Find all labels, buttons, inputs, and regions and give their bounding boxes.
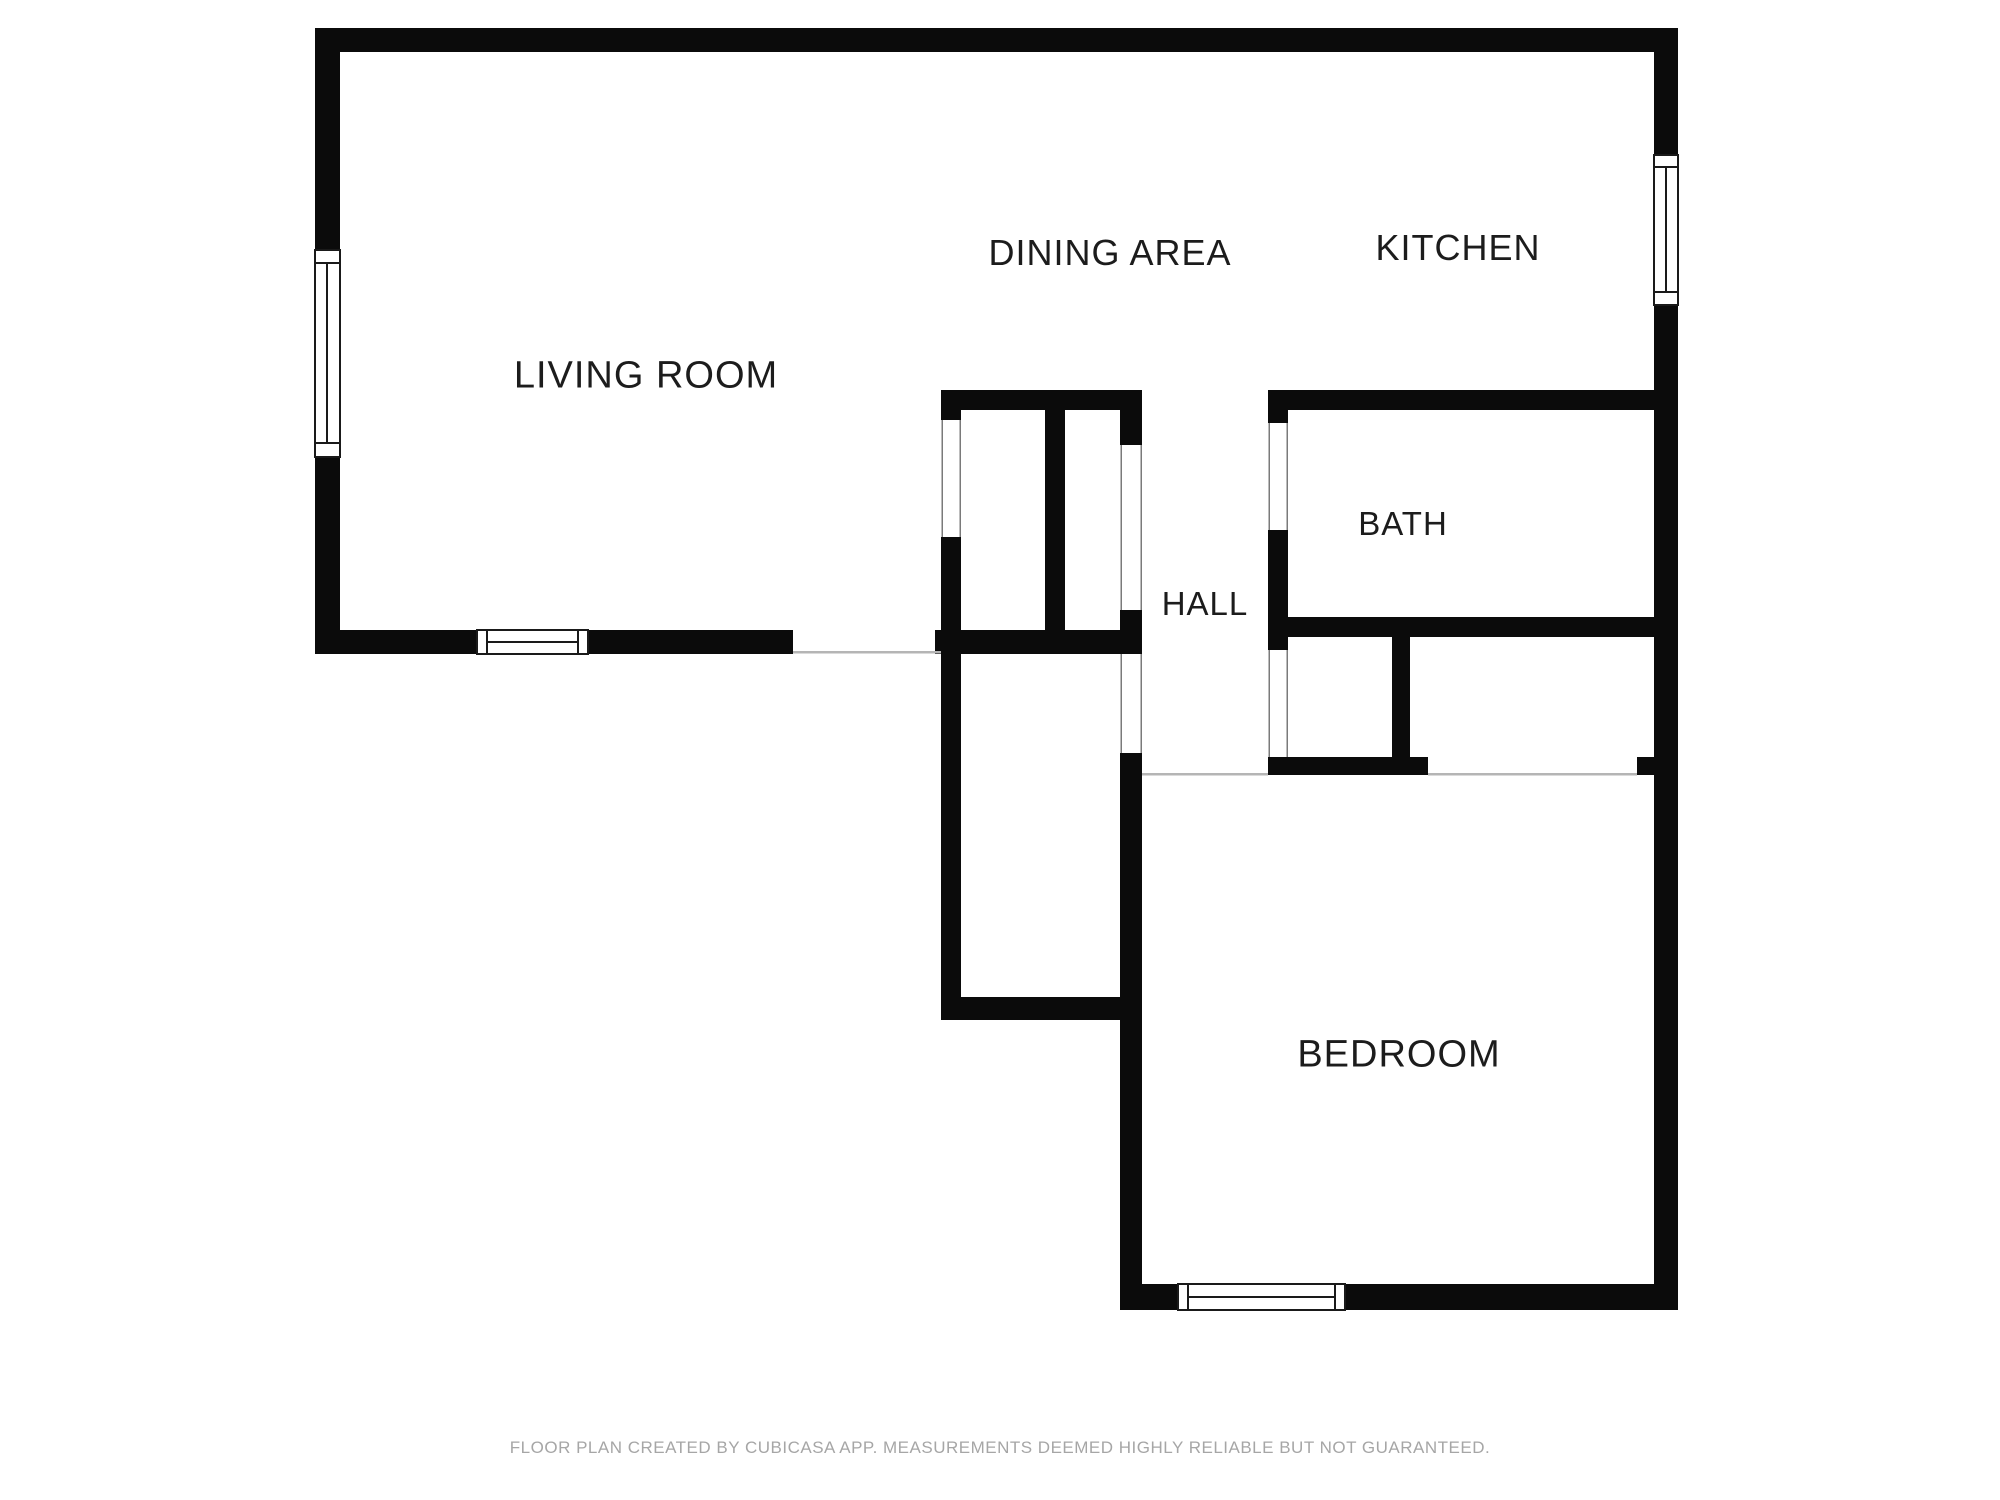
wall-bedroom-bottom-left: [1120, 1284, 1178, 1310]
windows: [315, 155, 1678, 1310]
wall-left-lower: [315, 457, 340, 654]
wall-bath-left-top: [1268, 390, 1288, 423]
wall-livingroom-bottom-right: [588, 630, 793, 654]
room-label-kitchen: KITCHEN: [1375, 227, 1540, 269]
walls: [315, 28, 1678, 1310]
window-bedroom-bottom: [1178, 1284, 1345, 1310]
wall-bath-top: [1268, 390, 1678, 410]
room-label-hall: HALL: [1162, 585, 1249, 623]
wall-bedroom-top-right: [1637, 757, 1655, 775]
wall-bedroom-left: [1120, 753, 1142, 1310]
window-kitchen-right: [1654, 155, 1678, 305]
wall-closet-top: [941, 390, 1142, 410]
footer-disclaimer: FLOOR PLAN CREATED BY CUBICASA APP. MEAS…: [510, 1438, 1490, 1458]
floor-plan-drawing: [0, 0, 2000, 1500]
room-label-dining-area: DINING AREA: [988, 232, 1231, 274]
door-bath: [1269, 423, 1287, 530]
door-hall-closet: [1269, 650, 1287, 757]
door-closet-left: [942, 420, 960, 537]
open-passages: [793, 652, 1637, 774]
wall-left-upper: [315, 52, 340, 250]
wall-closet-bottom: [935, 630, 1142, 654]
room-label-bedroom: BEDROOM: [1297, 1034, 1500, 1077]
wall-entry-left: [941, 654, 961, 1020]
wall-right-main: [1654, 305, 1678, 1310]
wall-bath-bottom: [1288, 617, 1654, 637]
door-entry-from-hall: [1121, 654, 1141, 753]
door-closet-right: [1121, 445, 1141, 610]
wall-closet-right-top: [1120, 390, 1142, 445]
room-label-bath: BATH: [1358, 505, 1448, 543]
floor-plan-page: LIVING ROOM DINING AREA KITCHEN BATH HAL…: [0, 0, 2000, 1500]
wall-right-upper: [1654, 28, 1678, 155]
wall-closet-right-bottom: [1120, 610, 1142, 654]
wall-closet-left-top: [941, 390, 961, 420]
wall-bath-left-bottom: [1268, 530, 1288, 650]
window-living-room-left: [315, 250, 340, 457]
wall-closet-left-bottom: [941, 537, 961, 630]
room-label-living-room: LIVING ROOM: [514, 355, 778, 398]
wall-bedroom-top: [1268, 757, 1428, 775]
wall-closet-center: [1045, 410, 1065, 630]
window-living-room-bottom: [477, 630, 588, 654]
wall-hall-closet-divider: [1392, 637, 1410, 775]
wall-top: [315, 28, 1678, 52]
wall-entry-bottom: [941, 997, 1142, 1020]
wall-livingroom-bottom-left: [315, 630, 477, 654]
wall-bedroom-bottom-right: [1345, 1284, 1678, 1310]
